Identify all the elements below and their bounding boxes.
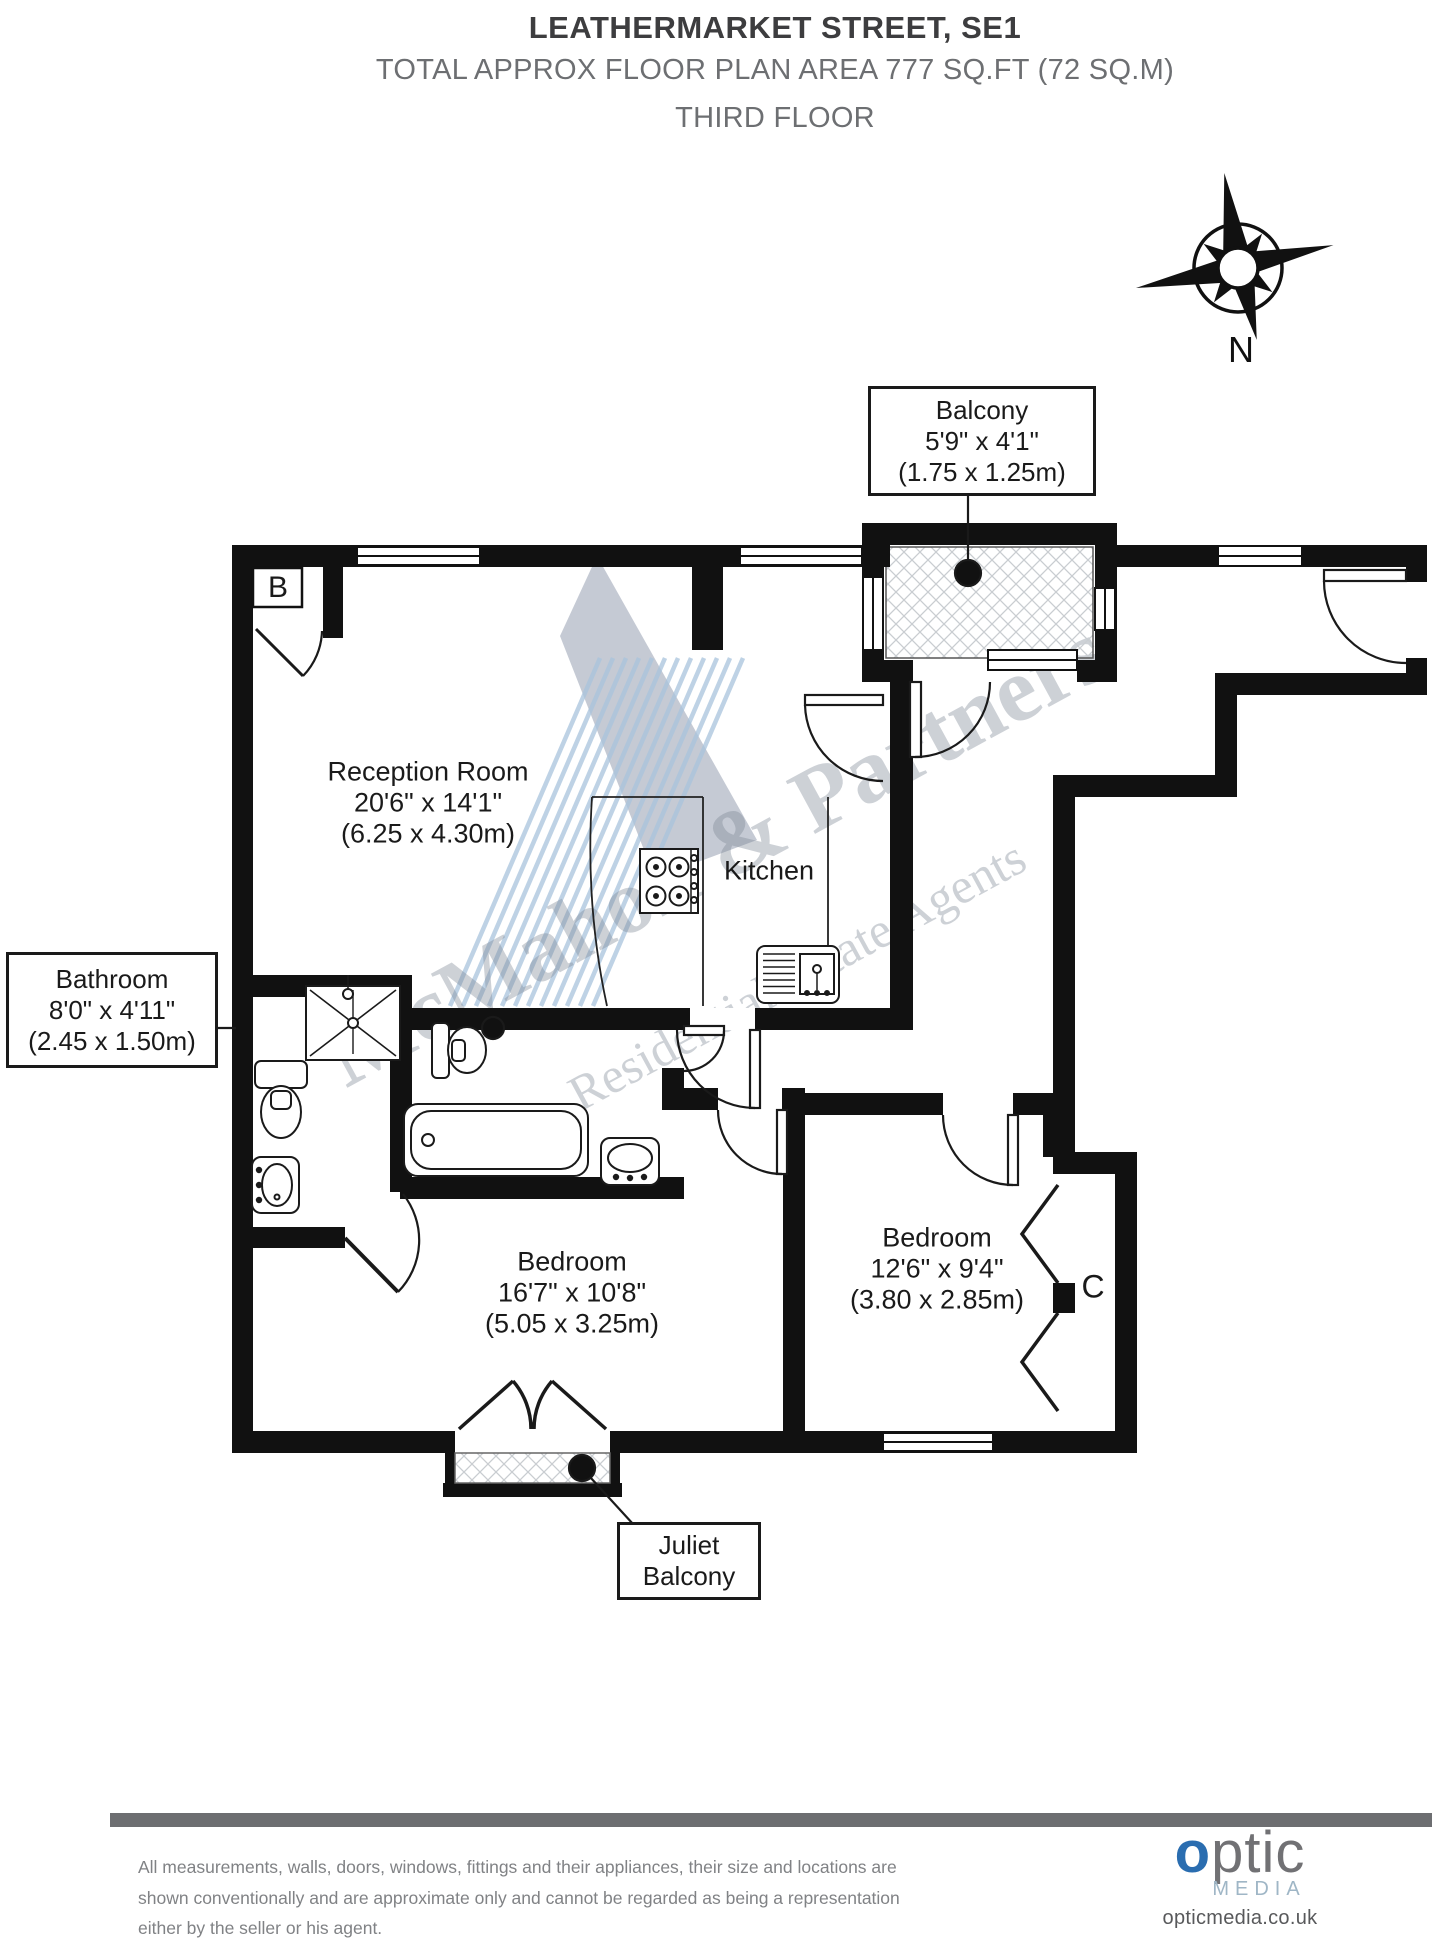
- compass-n-label: N: [1228, 329, 1254, 370]
- juliet-balcony-label-box: Juliet Balcony: [617, 1522, 761, 1600]
- compass-icon: N: [1119, 156, 1347, 370]
- optic-logo-wordmark: optic: [1150, 1824, 1330, 1882]
- bedroom1-imperial: 16'7" x 10'8": [485, 1278, 659, 1309]
- bathroom-label-box: Bathroom 8'0" x 4'11" (2.45 x 1.50m): [6, 952, 218, 1068]
- window: [988, 650, 1077, 670]
- optic-logo-rest: ptic: [1211, 1820, 1305, 1885]
- window: [1095, 588, 1115, 630]
- bedroom1-door: [718, 1110, 787, 1174]
- disclaimer-text: All measurements, walls, doors, windows,…: [138, 1852, 900, 1944]
- front-door: [1324, 570, 1406, 663]
- balcony-metric: (1.75 x 1.25m): [871, 457, 1093, 488]
- cupboard-c-label: C: [1081, 1269, 1104, 1306]
- reception-metric: (6.25 x 4.30m): [327, 819, 528, 850]
- basin2-icon: [601, 1138, 659, 1185]
- balcony-label-box: Balcony 5'9" x 4'1" (1.75 x 1.25m): [868, 386, 1096, 496]
- bedroom2-door: [943, 1115, 1018, 1185]
- toilet2-icon: [432, 1023, 486, 1078]
- balcony-name: Balcony: [871, 395, 1093, 426]
- bedroom2-metric: (3.80 x 2.85m): [850, 1285, 1024, 1316]
- bedroom2-name: Bedroom: [850, 1223, 1024, 1254]
- bathroom-metric: (2.45 x 1.50m): [9, 1026, 215, 1057]
- disclaimer-line1: All measurements, walls, doors, windows,…: [138, 1852, 900, 1883]
- window: [863, 577, 883, 650]
- juliet-line2: Balcony: [620, 1561, 758, 1592]
- basin-icon: [252, 1157, 299, 1213]
- cupboard-b-door: [256, 629, 322, 676]
- window: [357, 547, 480, 565]
- reception-imperial: 20'6" x 14'1": [327, 788, 528, 819]
- shower-icon: [306, 975, 400, 1060]
- bedroom1-metric: (5.05 x 3.25m): [485, 1309, 659, 1340]
- juliet-line1: Juliet: [620, 1530, 758, 1561]
- window: [1218, 546, 1302, 566]
- floorplan-page: LEATHERMARKET STREET, SE1 TOTAL APPROX F…: [0, 0, 1432, 1944]
- cupboard-b-label: B: [268, 571, 288, 605]
- reception-room-label: Reception Room 20'6" x 14'1" (6.25 x 4.3…: [327, 757, 528, 850]
- bedroom1-label: Bedroom 16'7" x 10'8" (5.05 x 3.25m): [485, 1247, 659, 1340]
- bedroom1-name: Bedroom: [485, 1247, 659, 1278]
- balcony-imperial: 5'9" x 4'1": [871, 426, 1093, 457]
- bathroom-name: Bathroom: [9, 964, 215, 995]
- disclaimer-line2: shown conventionally and are approximate…: [138, 1883, 900, 1914]
- bathroom1-door: [345, 1194, 419, 1292]
- sink-icon: [757, 946, 839, 1003]
- wardrobe-bifold-doors: [1022, 1185, 1058, 1411]
- optic-media-website: opticmedia.co.uk: [1150, 1907, 1330, 1930]
- bedroom2-imperial: 12'6" x 9'4": [850, 1254, 1024, 1285]
- toilet-icon: [255, 1061, 307, 1138]
- bathtub-icon: [404, 1104, 588, 1176]
- balcony-floor: [886, 547, 1093, 658]
- optic-media-logo: optic MEDIA opticmedia.co.uk: [1150, 1824, 1330, 1930]
- kitchen-label: Kitchen: [724, 856, 814, 887]
- bedroom2-label: Bedroom 12'6" x 9'4" (3.80 x 2.85m): [850, 1223, 1024, 1316]
- kitchen-name: Kitchen: [724, 856, 814, 887]
- juliet-french-doors: [459, 1381, 606, 1429]
- reception-name: Reception Room: [327, 757, 528, 788]
- window: [883, 1433, 993, 1451]
- hob-icon: [640, 849, 698, 913]
- optic-logo-o: o: [1175, 1820, 1211, 1885]
- watermark-text: McMahon & Partners Residential Estate Ag…: [307, 599, 1124, 1121]
- disclaimer-line3: either by the seller or his agent.: [138, 1913, 900, 1944]
- window: [740, 547, 862, 565]
- bathroom-imperial: 8'0" x 4'11": [9, 995, 215, 1026]
